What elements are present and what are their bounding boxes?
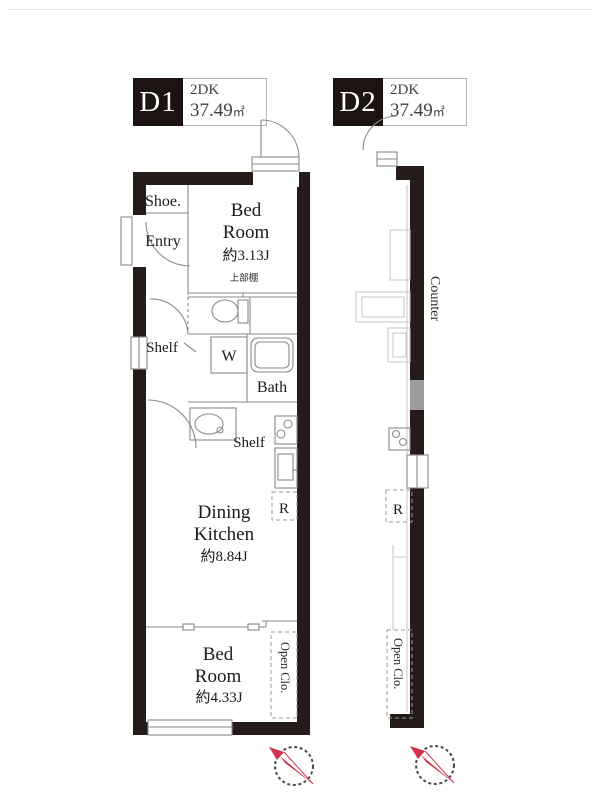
d2-top-wall-stub [396, 166, 424, 180]
d1-shelf-pointer [184, 343, 196, 352]
label-dk-line1: Dining [198, 502, 251, 523]
label-bedroom1-line1: Bed [231, 200, 262, 221]
d2-mid-window-frame [407, 455, 428, 488]
label-fridge-d2: R [393, 502, 403, 518]
floorplan-drawing: Shoe. Entry Bed Room 約3.13J 上部棚 Shelf W … [0, 0, 600, 800]
label-bath: Bath [257, 379, 287, 396]
compass-d1 [269, 747, 313, 785]
d1-top-door-opening [253, 170, 299, 187]
label-open-closet-d2: Open Clo. [391, 638, 405, 689]
d1-kitchen-sink-icon [275, 448, 297, 488]
d2-main-wall [410, 180, 424, 728]
label-counter: Counter [427, 276, 442, 321]
d1-bottom-window [148, 720, 232, 735]
compass-d2 [410, 746, 454, 784]
d2-faint-fixtures [356, 230, 410, 630]
d1-top-door [252, 120, 299, 171]
label-bedroom2-line2: Room [195, 666, 242, 687]
d1-toilet-icon [150, 299, 248, 334]
plan-d2: Counter R Open Clo. [356, 116, 442, 728]
d1-left-window [131, 337, 147, 369]
d2-bottom-wall-stub [390, 714, 424, 728]
plan-d1: Shoe. Entry Bed Room 約3.13J 上部棚 Shelf W … [121, 120, 310, 736]
label-shelf-kitchen: Shelf [233, 435, 265, 451]
label-shelf-left: Shelf [146, 340, 178, 356]
label-bedroom1-size: 約3.13J [222, 247, 269, 264]
label-upper-shelf: 上部棚 [230, 272, 259, 284]
d1-partitions [146, 185, 297, 402]
label-shoe: Shoe. [145, 193, 181, 210]
compass-needle-line [284, 752, 313, 784]
compass-needle-line [425, 751, 454, 783]
d1-stove-icon [275, 416, 297, 444]
compass-needle-tail-icon [421, 755, 454, 783]
label-bedroom2-size: 約4.33J [195, 689, 242, 706]
d1-washbasin-icon [148, 400, 236, 448]
label-bedroom2-line1: Bed [203, 644, 234, 665]
compass-needle-tail-icon [280, 756, 313, 784]
label-fridge-d1: R [279, 501, 289, 517]
label-open-closet-d1: Open Clo. [278, 642, 292, 693]
label-bedroom1-line2: Room [223, 222, 270, 243]
d1-sliding-door [146, 621, 297, 630]
d2-entry-door [363, 116, 397, 166]
d2-wall-window-segment [410, 380, 424, 410]
label-dk-line2: Kitchen [194, 524, 255, 545]
label-entry: Entry [145, 233, 181, 250]
d1-bathtub-icon [251, 338, 293, 372]
label-washer: W [221, 348, 237, 365]
floorplan-page: D1 2DK 37.49㎡ D2 2DK 37.49㎡ [0, 0, 600, 800]
label-dk-size: 約8.84J [200, 548, 247, 565]
